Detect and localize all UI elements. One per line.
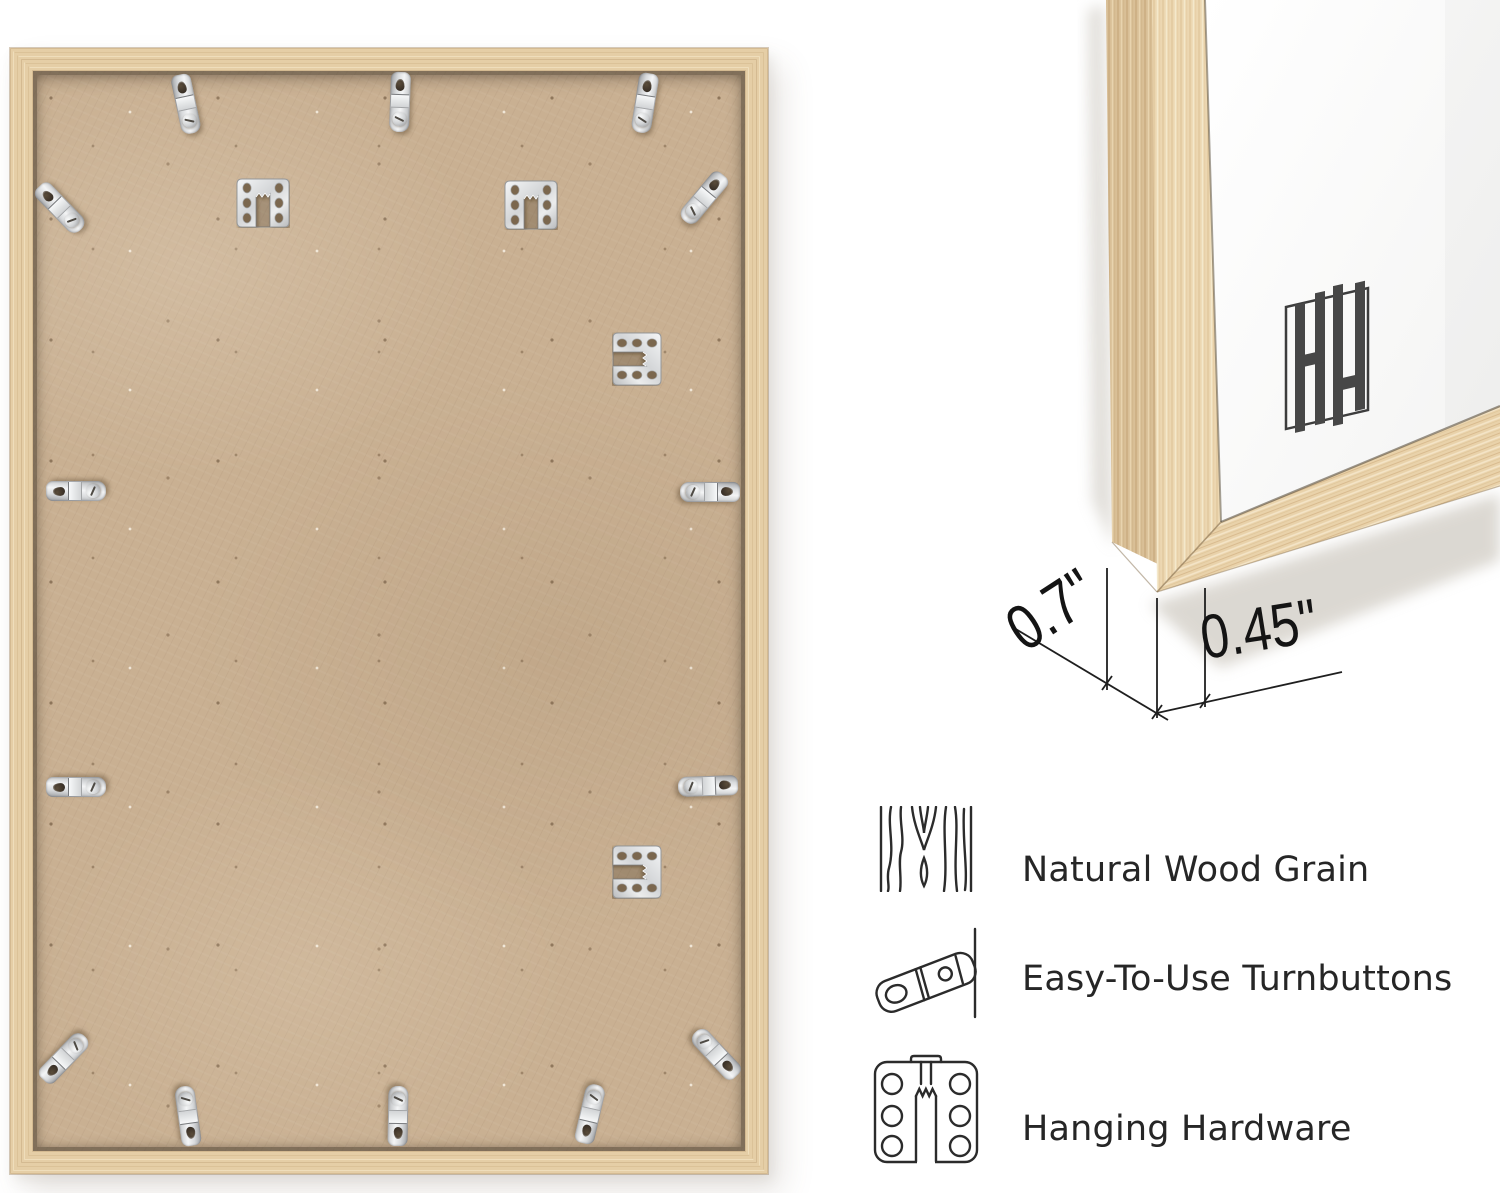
mdf-backing-board [33, 71, 745, 1151]
sawtooth-hanger [612, 332, 662, 386]
feature-label-hanging-hardware: Hanging Hardware [1022, 1106, 1352, 1152]
frame-border-right [745, 48, 768, 1174]
sawtooth-hanger [236, 178, 290, 228]
feature-label-turnbuttons: Easy-To-Use Turnbuttons [1022, 956, 1452, 1002]
wood-grain-icon [876, 806, 976, 892]
product-image: 0.7" 0.45" Natural Wood Grain Easy-To-Us… [0, 0, 1500, 1193]
hanging-hardware-icon [873, 1054, 979, 1166]
turnbutton-icon [870, 925, 984, 1021]
frame-border-top [10, 48, 768, 71]
turnbutton [680, 482, 740, 502]
frame-border-bottom [10, 1151, 768, 1174]
turnbutton [46, 777, 106, 797]
turnbutton [389, 72, 411, 133]
frame-corner-detail: 0.7" 0.45" [990, 0, 1500, 780]
turnbutton [678, 775, 739, 797]
frame-back-view [10, 48, 768, 1174]
sawtooth-hanger [612, 845, 662, 899]
sawtooth-hanger [504, 180, 558, 230]
turnbutton [46, 481, 106, 501]
feature-label-wood-grain: Natural Wood Grain [1022, 847, 1369, 893]
turnbutton [387, 1086, 408, 1146]
frame-border-left [10, 48, 33, 1174]
